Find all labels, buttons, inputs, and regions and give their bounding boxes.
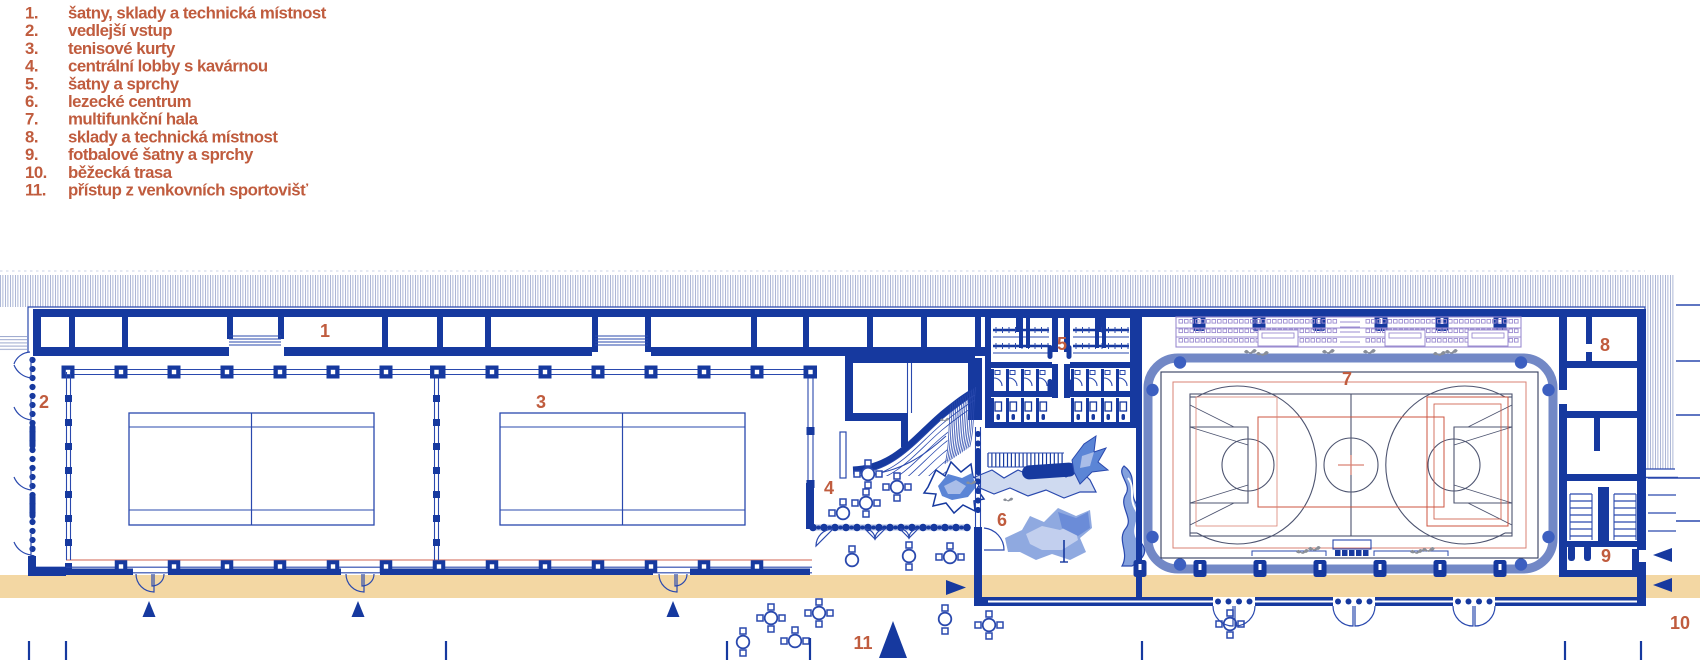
svg-text:4: 4 <box>824 478 834 498</box>
svg-text:multifunkční hala: multifunkční hala <box>68 110 199 129</box>
svg-text:11: 11 <box>853 633 872 653</box>
svg-text:5: 5 <box>1057 334 1067 354</box>
svg-text:1.: 1. <box>25 4 38 23</box>
svg-text:8.: 8. <box>25 127 38 146</box>
svg-text:3.: 3. <box>25 39 38 58</box>
svg-text:9.: 9. <box>25 145 38 164</box>
svg-text:šatny a sprchy: šatny a sprchy <box>68 74 180 93</box>
svg-text:přístup z venkovních sportoviš: přístup z venkovních sportovišť <box>68 181 309 200</box>
svg-text:3: 3 <box>536 392 546 412</box>
svg-text:4.: 4. <box>25 57 38 76</box>
svg-text:tenisové kurty: tenisové kurty <box>68 39 176 58</box>
svg-text:5.: 5. <box>25 74 38 93</box>
svg-text:běžecká trasa: běžecká trasa <box>68 163 173 182</box>
svg-text:1: 1 <box>320 321 330 341</box>
svg-text:6: 6 <box>997 510 1007 530</box>
svg-text:fotbalové šatny a sprchy: fotbalové šatny a sprchy <box>68 145 254 164</box>
svg-text:9: 9 <box>1601 546 1611 566</box>
svg-text:10.: 10. <box>25 163 47 182</box>
svg-text:2.: 2. <box>25 21 38 40</box>
svg-text:8: 8 <box>1600 335 1610 355</box>
svg-text:šatny, sklady a technická míst: šatny, sklady a technická místnost <box>68 4 327 23</box>
svg-text:10: 10 <box>1670 613 1690 633</box>
svg-text:7: 7 <box>1342 369 1352 389</box>
svg-text:7.: 7. <box>25 110 38 129</box>
svg-text:lezecké centrum: lezecké centrum <box>68 92 191 111</box>
svg-text:6.: 6. <box>25 92 38 111</box>
svg-text:11.: 11. <box>25 181 46 200</box>
svg-text:centrální lobby s kavárnou: centrální lobby s kavárnou <box>68 57 268 76</box>
svg-text:sklady a technická místnost: sklady a technická místnost <box>68 127 278 146</box>
svg-text:2: 2 <box>39 392 49 412</box>
svg-text:vedlejší vstup: vedlejší vstup <box>68 21 172 40</box>
